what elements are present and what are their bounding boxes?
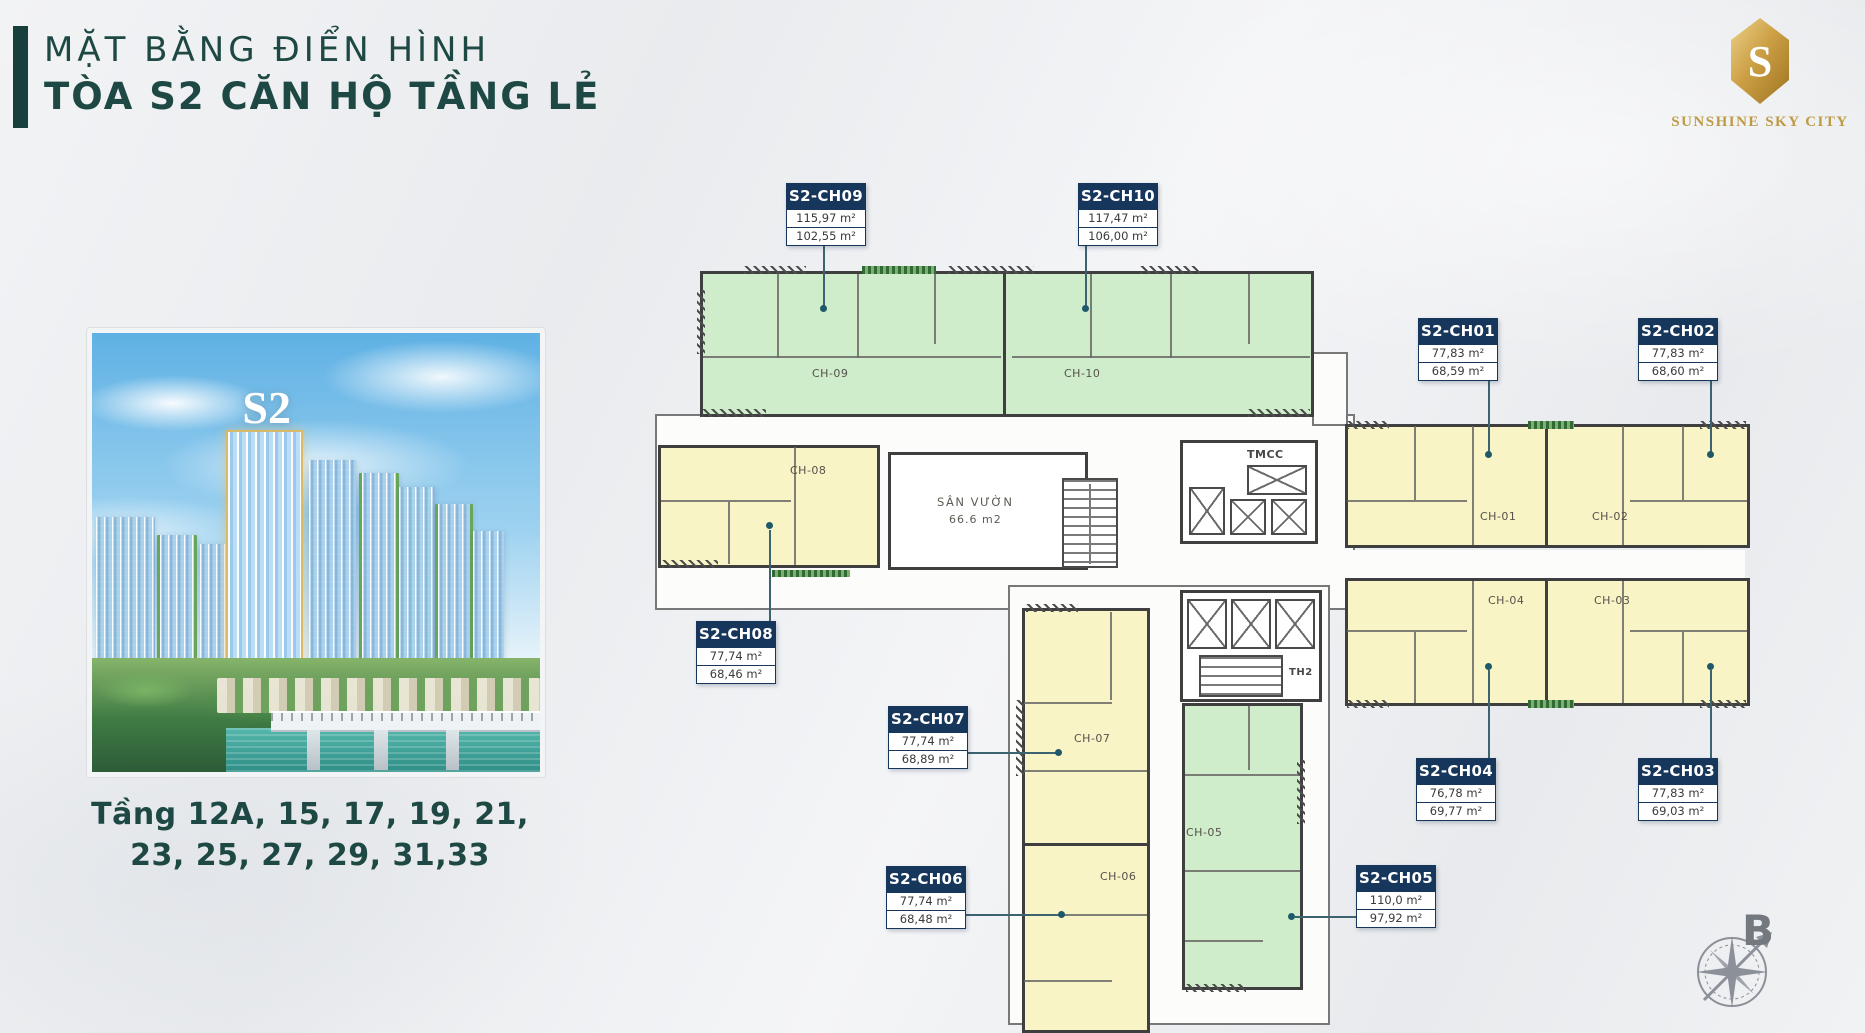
- wall-partition: [1630, 630, 1747, 632]
- unit-divider: [1545, 424, 1548, 548]
- wall-partition: [1024, 702, 1112, 704]
- room-label: CH-05: [1186, 826, 1222, 839]
- stair-rail: [1089, 484, 1091, 564]
- wing-north: [700, 271, 1314, 417]
- leader-line: [769, 530, 771, 621]
- unit-area-1: 77,83 m²: [1639, 344, 1717, 362]
- balcony-hatch: [662, 560, 718, 568]
- unit-area-1: 76,78 m²: [1417, 784, 1495, 802]
- balcony-hatch: [1140, 266, 1200, 274]
- balcony-hatch: [1700, 700, 1746, 708]
- tower: [359, 473, 399, 666]
- balcony-hatch: [1347, 700, 1389, 708]
- unit-id: S2-CH02: [1639, 319, 1717, 344]
- page-title: MẶT BẰNG ĐIỂN HÌNH TÒA S2 CĂN HỘ TẦNG LẺ: [44, 30, 600, 118]
- leader-dot: [1058, 911, 1065, 918]
- tower: [157, 535, 197, 667]
- core-label: TMCC: [1247, 448, 1284, 461]
- room-label: CH-08: [790, 464, 826, 477]
- leader-dot: [1485, 663, 1492, 670]
- leader-dot: [1485, 451, 1492, 458]
- garden-area-value: 66.6 m2: [949, 513, 1002, 526]
- unit-area-2: 68,60 m²: [1639, 362, 1717, 380]
- unit-area-2: 68,89 m²: [889, 750, 967, 768]
- corridor-area: [1350, 550, 1745, 578]
- unit-area-2: 97,92 m²: [1357, 909, 1435, 927]
- wall-partition: [661, 500, 791, 502]
- unit-area-2: 69,77 m²: [1417, 802, 1495, 820]
- unit-divider: [1545, 578, 1548, 706]
- balcony-hatch: [1700, 421, 1746, 429]
- title-accent-bar: [13, 26, 28, 128]
- unit-divider: [1022, 843, 1150, 846]
- balcony-hatch: [948, 266, 1034, 274]
- garden-label: SÂN VƯỜN: [937, 495, 1013, 509]
- wall-partition: [1110, 612, 1112, 700]
- unit-area-1: 110,0 m²: [1357, 891, 1435, 909]
- leader-line: [1710, 374, 1712, 456]
- wall-partition: [1024, 980, 1112, 982]
- elevator-shaft: [1189, 487, 1225, 535]
- slide: MẶT BẰNG ĐIỂN HÌNH TÒA S2 CĂN HỘ TẦNG LẺ…: [0, 0, 1865, 1033]
- unit-label-box: S2-CH09 115,97 m² 102,55 m²: [786, 183, 866, 246]
- wall-partition: [1472, 426, 1474, 545]
- tower: [399, 487, 435, 667]
- building-photo: S2: [87, 328, 545, 777]
- unit-id: S2-CH08: [697, 622, 775, 647]
- wall-partition: [1472, 581, 1474, 703]
- bridge-railing: [271, 713, 540, 721]
- balcony-hatch: [1186, 984, 1246, 992]
- tower: [96, 517, 154, 666]
- tower-s2-badge: S2: [200, 381, 334, 434]
- room-label: CH-01: [1480, 510, 1516, 523]
- planter-strip: [1528, 700, 1574, 708]
- wall-partition: [1248, 274, 1250, 344]
- unit-area-2: 68,59 m²: [1419, 362, 1497, 380]
- unit-area-1: 77,83 m²: [1419, 344, 1497, 362]
- elevator-shaft: [1187, 599, 1227, 649]
- corridor-area: [1312, 352, 1348, 426]
- title-line-1: MẶT BẰNG ĐIỂN HÌNH: [44, 30, 600, 70]
- wall-partition: [1185, 940, 1263, 942]
- unit-label-box: S2-CH02 77,83 m² 68,60 m²: [1638, 318, 1718, 381]
- floors-line-1: Tầng 12A, 15, 17, 19, 21,: [70, 794, 550, 835]
- unit-area-2: 68,48 m²: [887, 910, 965, 928]
- core-label: TH2: [1289, 667, 1313, 678]
- wall-partition: [1347, 500, 1467, 502]
- unit-id: S2-CH03: [1639, 759, 1717, 784]
- leader-line: [1488, 670, 1490, 758]
- brand-diamond-icon: S: [1731, 18, 1789, 104]
- wall-partition: [703, 356, 1001, 358]
- floors-line-2: 23, 25, 27, 29, 31,33: [70, 835, 550, 876]
- stairwell: [1062, 478, 1118, 568]
- unit-divider: [1003, 271, 1006, 417]
- unit-area-2: 102,55 m²: [787, 227, 865, 245]
- tower: [309, 460, 356, 666]
- elevator-shaft: [1271, 499, 1307, 535]
- unit-area-2: 69,03 m²: [1639, 802, 1717, 820]
- unit-area-1: 77,74 m²: [887, 892, 965, 910]
- elevator-shaft: [1231, 599, 1271, 649]
- unit-label-box: S2-CH03 77,83 m² 69,03 m²: [1638, 758, 1718, 821]
- balcony-hatch: [702, 409, 766, 417]
- elevator-core-tmcc: TMCC: [1180, 440, 1318, 544]
- title-line-2: TÒA S2 CĂN HỘ TẦNG LẺ: [44, 75, 600, 118]
- wing-south-ch05: [1182, 703, 1303, 990]
- elevator-shaft: [1247, 465, 1307, 495]
- unit-id: S2-CH05: [1357, 866, 1435, 891]
- balcony-hatch: [1248, 409, 1310, 417]
- unit-area-1: 77,74 m²: [697, 647, 775, 665]
- wall-partition: [1185, 870, 1300, 872]
- leader-dot: [1082, 305, 1089, 312]
- wall-partition: [1414, 426, 1416, 500]
- brand-monogram: S: [1748, 37, 1772, 86]
- wall-partition: [777, 274, 779, 358]
- unit-label-box: S2-CH10 117,47 m² 106,00 m²: [1078, 183, 1158, 246]
- planter-strip: [862, 266, 936, 274]
- room-label: CH-10: [1064, 367, 1100, 380]
- leader-dot: [1288, 913, 1295, 920]
- photo-villas: [217, 678, 540, 713]
- wall-partition: [934, 274, 936, 344]
- unit-label-box: S2-CH06 77,74 m² 68,48 m²: [886, 866, 966, 929]
- leader-line: [966, 914, 1060, 916]
- elevator-shaft: [1230, 499, 1266, 535]
- leader-dot: [1707, 451, 1714, 458]
- room-label: CH-09: [812, 367, 848, 380]
- unit-id: S2-CH07: [889, 707, 967, 732]
- tower: [473, 531, 504, 667]
- balcony-hatch: [1297, 760, 1305, 824]
- unit-label-box: S2-CH08 77,74 m² 68,46 m²: [696, 621, 776, 684]
- balcony-hatch: [1347, 421, 1389, 429]
- balcony-hatch: [1026, 604, 1078, 612]
- unit-area-1: 77,74 m²: [889, 732, 967, 750]
- wing-south-ch06-ch07: [1022, 608, 1150, 1033]
- wall-partition: [728, 502, 730, 564]
- unit-area-2: 106,00 m²: [1079, 227, 1157, 245]
- wall-partition: [1414, 632, 1416, 703]
- floors-caption: Tầng 12A, 15, 17, 19, 21, 23, 25, 27, 29…: [70, 794, 550, 877]
- leader-dot: [1707, 663, 1714, 670]
- photo-bridge: [271, 711, 540, 731]
- wall-partition: [1682, 426, 1684, 500]
- room-label: CH-06: [1100, 870, 1136, 883]
- compass-north-label: B: [1742, 906, 1774, 955]
- unit-label-box: S2-CH05 110,0 m² 97,92 m²: [1356, 865, 1436, 928]
- wall-partition: [1185, 774, 1300, 776]
- unit-label-box: S2-CH07 77,74 m² 68,89 m²: [888, 706, 968, 769]
- unit-id: S2-CH01: [1419, 319, 1497, 344]
- leader-line: [1710, 670, 1712, 758]
- leader-line: [1488, 374, 1490, 456]
- bridge-pier: [446, 730, 459, 770]
- room-label: CH-04: [1488, 594, 1524, 607]
- unit-area-2: 68,46 m²: [697, 665, 775, 683]
- brand-logo: S SUNSHINE SKY CITY: [1662, 18, 1858, 131]
- bridge-pier: [374, 730, 387, 770]
- unit-id: S2-CH10: [1079, 184, 1157, 209]
- room-label: CH-02: [1592, 510, 1628, 523]
- garden-court: SÂN VƯỜN 66.6 m2: [888, 452, 1088, 570]
- balcony-hatch: [744, 266, 806, 274]
- leader-line: [968, 752, 1058, 754]
- tower: [435, 504, 473, 666]
- wall-partition: [857, 274, 859, 358]
- wall-partition: [1090, 274, 1092, 358]
- unit-label-box: S2-CH04 76,78 m² 69,77 m²: [1416, 758, 1496, 821]
- unit-id: S2-CH06: [887, 867, 965, 892]
- elevator-shaft: [1275, 599, 1315, 649]
- leader-line: [823, 239, 825, 309]
- planter-strip: [1528, 421, 1574, 429]
- stairwell: [1199, 655, 1283, 697]
- balcony-hatch: [1016, 700, 1024, 776]
- unit-id: S2-CH09: [787, 184, 865, 209]
- wall-partition: [1024, 770, 1147, 772]
- brand-name: SUNSHINE SKY CITY: [1662, 114, 1858, 131]
- leader-line: [1085, 239, 1087, 309]
- wall-partition: [1170, 274, 1172, 358]
- leader-dot: [1055, 749, 1062, 756]
- bridge-pier: [307, 730, 320, 770]
- unit-id: S2-CH04: [1417, 759, 1495, 784]
- unit-area-1: 77,83 m²: [1639, 784, 1717, 802]
- elevator-core-th2: TH2: [1180, 590, 1322, 702]
- unit-label-box: S2-CH01 77,83 m² 68,59 m²: [1418, 318, 1498, 381]
- room-label: CH-07: [1074, 732, 1110, 745]
- wall-partition: [1347, 630, 1467, 632]
- wall-partition: [1622, 426, 1624, 545]
- unit-area-1: 115,97 m²: [787, 209, 865, 227]
- tower-s2: [226, 430, 302, 667]
- leader-line: [1295, 916, 1356, 918]
- wall-partition: [1630, 500, 1747, 502]
- leader-dot: [766, 522, 773, 529]
- room-label: CH-03: [1594, 594, 1630, 607]
- leader-dot: [820, 305, 827, 312]
- unit-area-1: 117,47 m²: [1079, 209, 1157, 227]
- wall-partition: [1682, 632, 1684, 703]
- planter-strip: [772, 570, 850, 577]
- wall-partition: [1012, 356, 1310, 358]
- wall-partition: [1248, 706, 1250, 770]
- balcony-hatch: [697, 290, 705, 354]
